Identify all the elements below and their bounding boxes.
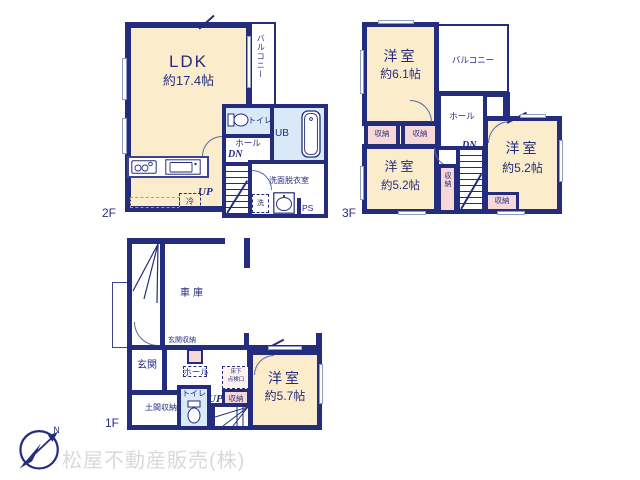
compass-icon: N [16,424,64,472]
entrance-storage-dashed [183,366,207,377]
entrance-storage-cabinet [187,349,203,364]
underfloor-hatch-label2: 点検口 [222,377,250,383]
up-1f-label: UP [208,393,223,406]
garage-label: 車庫 [180,288,206,300]
compass-north-label: N [53,425,59,435]
winder-stairs-lines [215,407,248,426]
wall-segment [127,238,225,244]
wall-segment [244,238,250,268]
watermark-company-name: 松屋不動産販売(株) [62,444,245,473]
slope-hatch [132,243,160,305]
underfloor-hatch-label1: 床下 [222,369,250,375]
floor-label-1f: 1F [105,417,119,431]
entrance-label: 玄関 [127,360,167,372]
entrance-storage-label: 玄関収納 [166,337,198,345]
toilet-icon [186,400,202,424]
floor-plan-canvas: LDK 約17.4帖 バルコニー トイレ ホール DN UP UB 洗面脱衣室 [0,0,640,480]
window-marker [268,346,302,350]
floor-plan-1f: 車庫 玄関 ホール 玄関収納 土間収納 トイレ 床下 点検口 収納 [0,0,640,480]
room-1f-57-size: 約5.7帖 [248,390,322,404]
toilet-1f-label: トイレ [179,389,209,398]
window-marker [319,364,323,404]
